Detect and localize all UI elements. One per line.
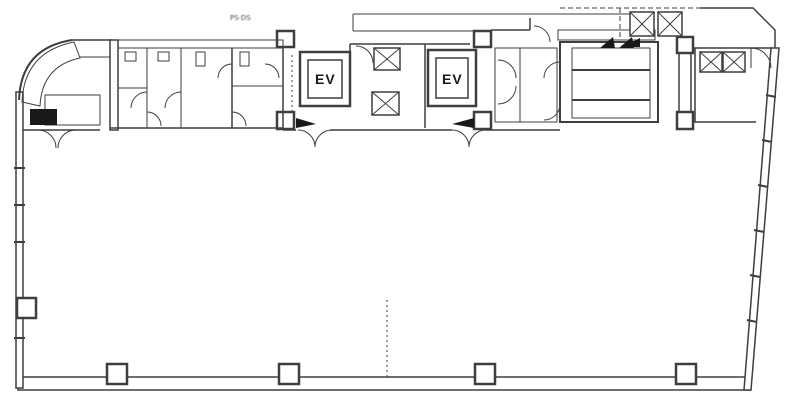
- elevator-1-label: EV: [315, 71, 336, 87]
- shaft-x-symbol: [372, 92, 399, 115]
- right-staircase: [544, 30, 658, 122]
- column: [279, 364, 299, 384]
- curved-stair-treads: [22, 42, 80, 106]
- right-room: [693, 48, 772, 122]
- door-swing: [218, 64, 232, 78]
- column: [677, 37, 693, 53]
- door-swing: [751, 48, 771, 68]
- door-swing: [58, 130, 76, 148]
- elevator-2: EV: [428, 50, 476, 106]
- column: [277, 31, 294, 47]
- shaft-x-symbol: [723, 52, 745, 72]
- vestibule: [491, 18, 557, 122]
- right-wall: [744, 48, 779, 390]
- door-swing: [131, 92, 147, 108]
- column: [107, 364, 127, 384]
- door-swing: [534, 26, 550, 42]
- door-swing: [265, 64, 279, 78]
- door-swing: [165, 92, 181, 108]
- shaft-x-symbol: [630, 12, 654, 36]
- annotation-text: PS·DS: [230, 14, 251, 22]
- direction-arrow: [452, 118, 474, 128]
- elevator-1: EV: [300, 52, 350, 106]
- column: [676, 364, 696, 384]
- column: [277, 112, 294, 129]
- left-wall: [16, 92, 23, 388]
- door-swing: [147, 112, 161, 126]
- curved-corner-wall: [19, 40, 72, 100]
- direction-arrow: [296, 118, 316, 128]
- column: [677, 112, 693, 129]
- column: [474, 31, 491, 47]
- column: [475, 364, 495, 384]
- door-swing: [356, 46, 373, 63]
- top-right-corner-wall: [700, 8, 775, 48]
- entry-doors-left: [296, 118, 332, 147]
- column: [474, 112, 491, 129]
- toilet-block: [110, 40, 283, 130]
- floor-plan-drawing: PS·DS EV EV: [0, 0, 787, 409]
- toilet-top-wall: [110, 40, 283, 48]
- shaft-x-symbol: [700, 52, 722, 72]
- shaft-dark-fill: [30, 109, 57, 125]
- door-swing: [232, 112, 246, 126]
- elevator-2-label: EV: [442, 71, 463, 87]
- shaft-x-symbol: [374, 48, 400, 70]
- door-swing: [38, 130, 56, 148]
- shaft-x-symbol: [658, 12, 682, 36]
- floor-plan-sheet: PS·DS EV EV: [0, 0, 787, 409]
- column: [17, 298, 36, 318]
